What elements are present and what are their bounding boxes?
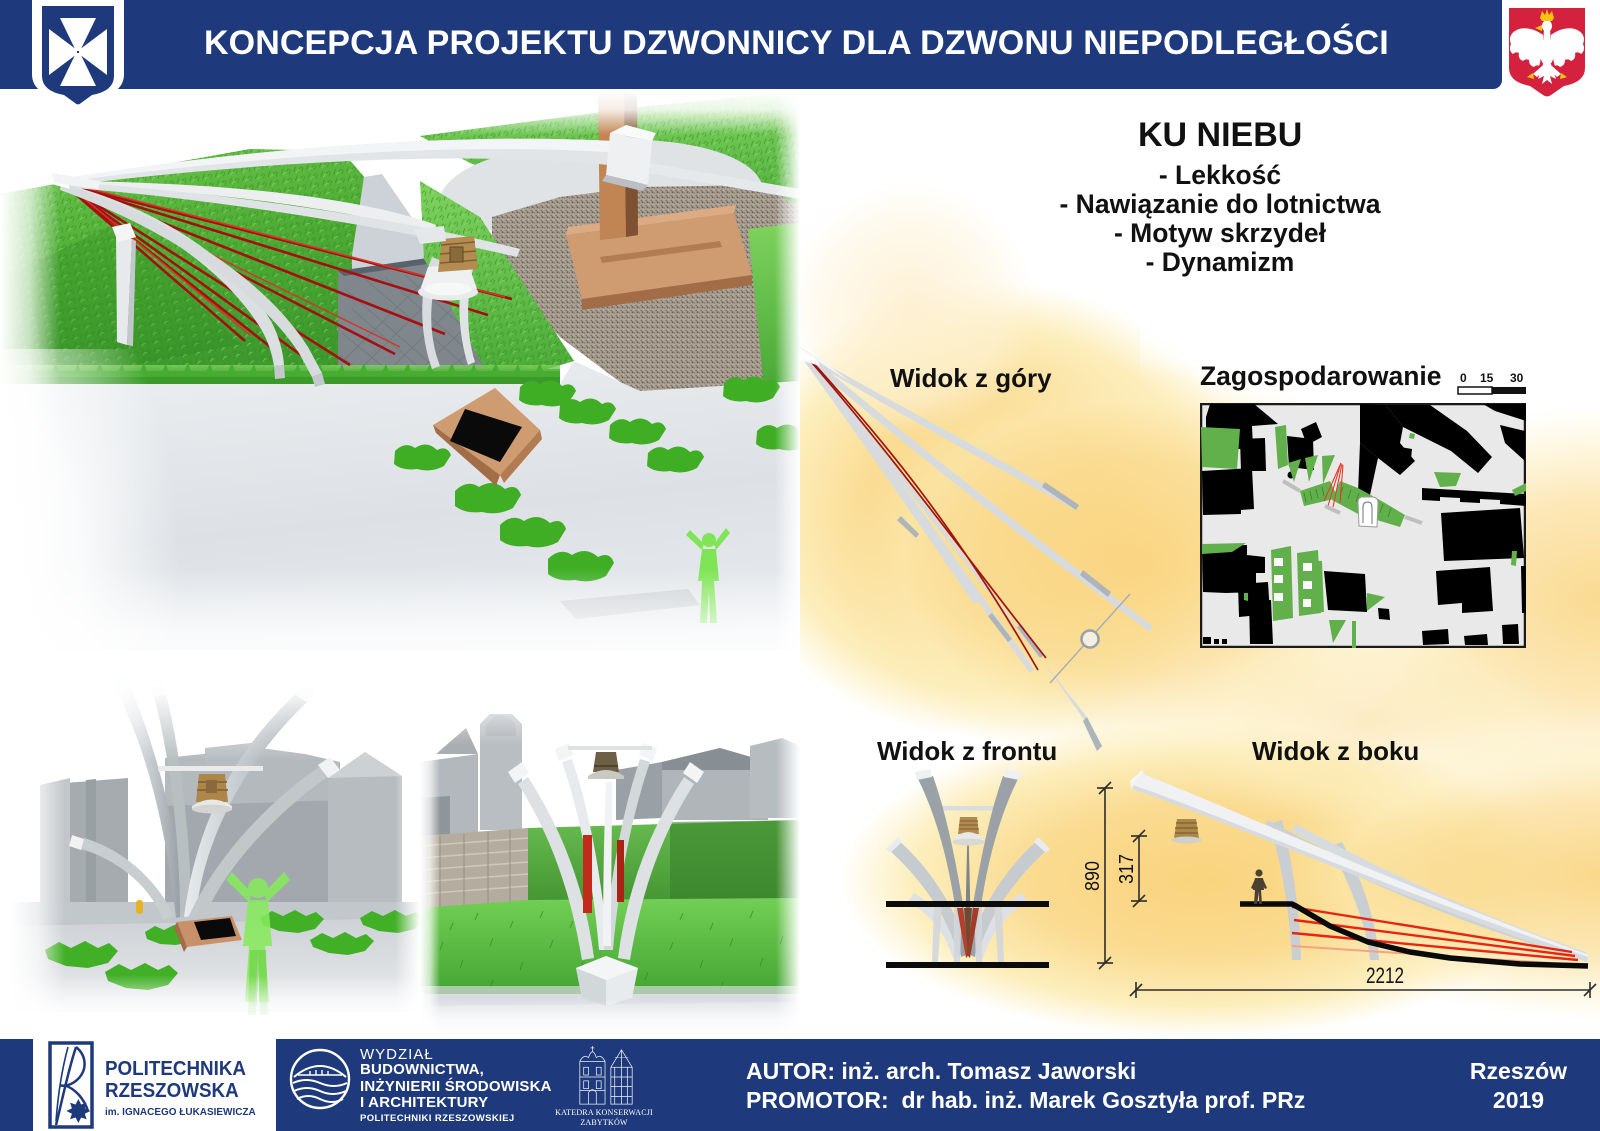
svg-text:15: 15 — [1480, 371, 1494, 385]
svg-text:2212: 2212 — [1366, 963, 1404, 988]
svg-text:890: 890 — [1082, 861, 1104, 891]
svg-text:30: 30 — [1510, 371, 1524, 385]
svg-text:0: 0 — [1460, 371, 1467, 385]
